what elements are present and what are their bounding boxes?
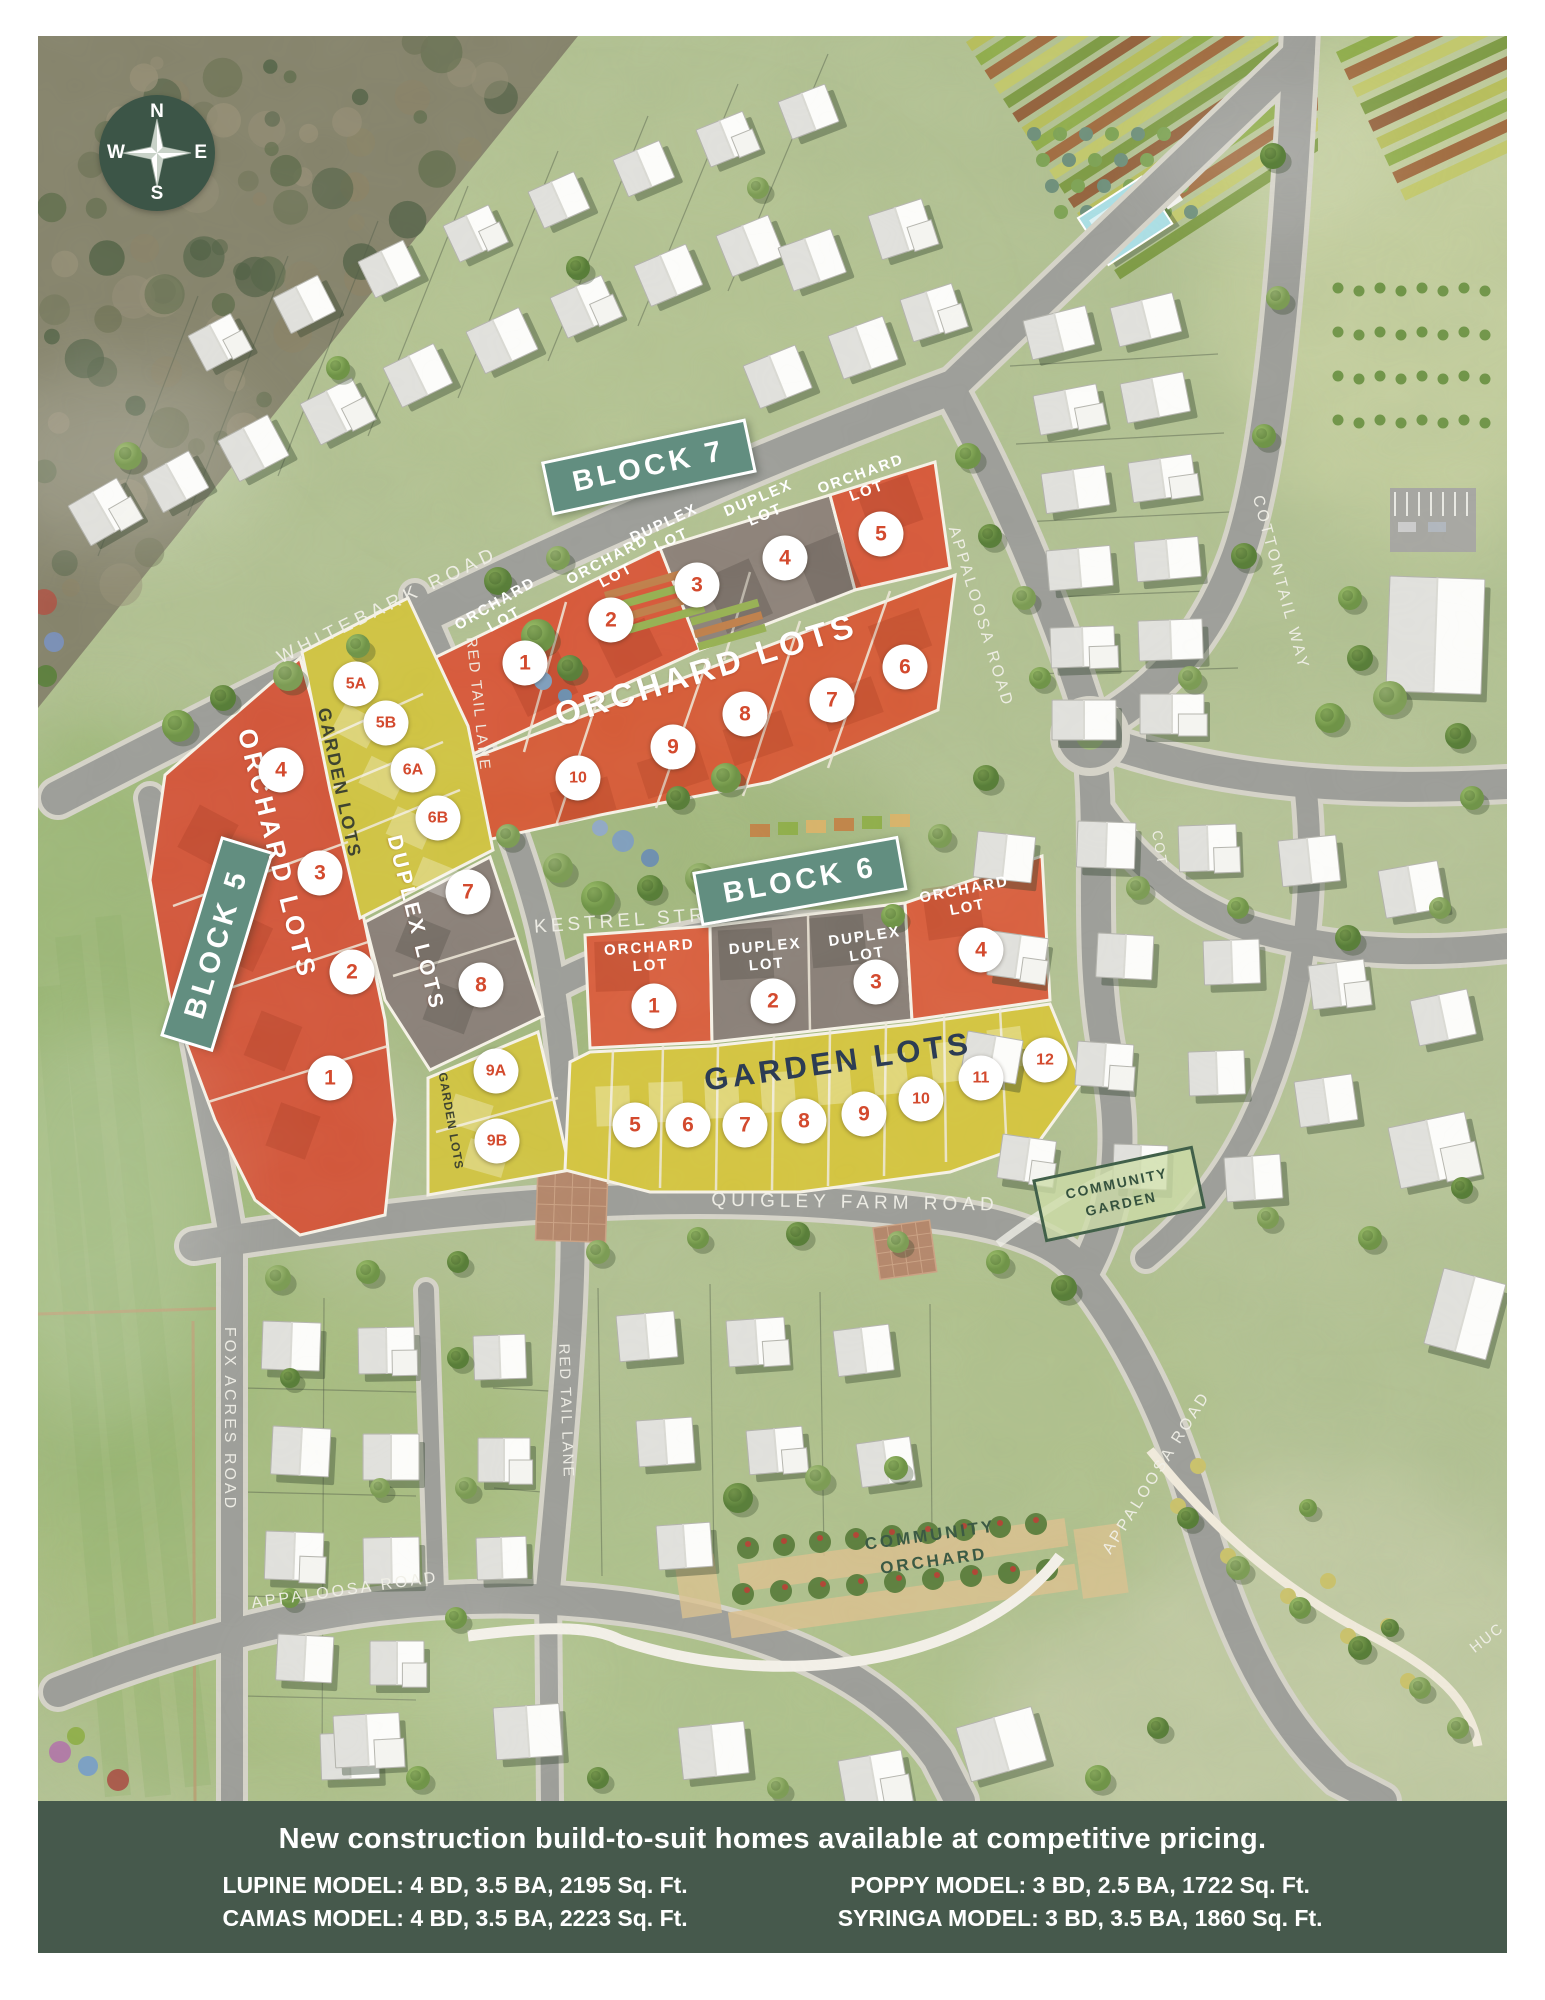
lot-marker-b7-7: 7 <box>810 678 855 723</box>
footer-model-specs: LUPINE MODEL: 4 BD, 3.5 BA, 2195 Sq. Ft.… <box>38 1869 1507 1934</box>
lot-marker-b6-9: 9 <box>842 1092 887 1137</box>
lot-marker-b7-8: 8 <box>723 692 768 737</box>
compass-w: W <box>107 142 125 164</box>
footer-headline: New construction build-to-suit homes ava… <box>38 1823 1507 1856</box>
lot-marker-b5-5A: 5A <box>334 662 379 707</box>
lot-marker-b6-11: 11 <box>959 1056 1004 1101</box>
model-spec-line: SYRINGA MODEL: 3 BD, 3.5 BA, 1860 Sq. Ft… <box>838 1902 1323 1935</box>
compass-n: N <box>150 101 164 123</box>
lot-marker-b5-4: 4 <box>259 748 304 793</box>
street-label-fox-acres-road-7: FOX ACRES ROAD <box>220 1327 238 1511</box>
atmosphere-overlay <box>38 36 1507 1801</box>
map-illustration <box>38 36 1507 1801</box>
lot-marker-b5-9A: 9A <box>474 1049 519 1094</box>
model-spec-line: CAMAS MODEL: 4 BD, 3.5 BA, 2223 Sq. Ft. <box>223 1902 688 1935</box>
lot-marker-b6-2: 2 <box>751 979 796 1024</box>
model-spec-line: LUPINE MODEL: 4 BD, 3.5 BA, 2195 Sq. Ft. <box>223 1869 688 1902</box>
lot-marker-b6-4: 4 <box>959 928 1004 973</box>
lot-marker-b5-9B: 9B <box>475 1119 520 1164</box>
lot-marker-b5-1: 1 <box>308 1056 353 1101</box>
lot-marker-b6-10: 10 <box>899 1077 944 1122</box>
lot-marker-b5-7: 7 <box>446 870 491 915</box>
lot-marker-b7-10: 10 <box>556 756 601 801</box>
lot-marker-b6-1: 1 <box>632 984 677 1029</box>
lot-marker-b5-3: 3 <box>298 851 343 896</box>
lot-marker-b6-5: 5 <box>613 1103 658 1148</box>
lot-marker-b6-12: 12 <box>1023 1038 1068 1083</box>
footer-band: New construction build-to-suit homes ava… <box>38 1801 1507 1953</box>
lot-marker-b6-3: 3 <box>854 960 899 1005</box>
lot-marker-b6-8: 8 <box>782 1099 827 1144</box>
lot-marker-b7-1: 1 <box>503 641 548 686</box>
footer-model-column-2: POPPY MODEL: 3 BD, 2.5 BA, 1722 Sq. Ft.S… <box>838 1869 1323 1934</box>
lot-marker-b5-2: 2 <box>330 950 375 995</box>
lot-marker-b5-5B: 5B <box>364 701 409 746</box>
lot-marker-b7-9: 9 <box>651 725 696 770</box>
lot-marker-b7-5: 5 <box>859 512 904 557</box>
lot-marker-b7-6: 6 <box>883 645 928 690</box>
site-plan-page: N E S W WHITEBARK ROADRED TAIL LANEKESTR… <box>0 0 1545 2000</box>
compass-s: S <box>151 183 164 205</box>
lot-marker-b6-6: 6 <box>666 1103 711 1148</box>
lot-marker-b6-7: 7 <box>723 1103 768 1148</box>
lot-type-label-orchard-lot-5: ORCHARD LOT <box>604 936 697 978</box>
compass-e: E <box>194 142 207 164</box>
lot-marker-b7-3: 3 <box>675 563 720 608</box>
lot-marker-b7-4: 4 <box>763 536 808 581</box>
site-map: N E S W WHITEBARK ROADRED TAIL LANEKESTR… <box>38 36 1507 1801</box>
lot-marker-b5-6A: 6A <box>391 748 436 793</box>
lot-marker-b5-8: 8 <box>459 963 504 1008</box>
footer-model-column-1: LUPINE MODEL: 4 BD, 3.5 BA, 2195 Sq. Ft.… <box>223 1869 688 1934</box>
lot-marker-b5-6B: 6B <box>416 796 461 841</box>
lot-type-label-duplex-lot-6: DUPLEX LOT <box>728 935 804 977</box>
model-spec-line: POPPY MODEL: 3 BD, 2.5 BA, 1722 Sq. Ft. <box>838 1869 1323 1902</box>
lot-marker-b7-2: 2 <box>589 598 634 643</box>
compass-rose: N E S W <box>99 95 215 211</box>
